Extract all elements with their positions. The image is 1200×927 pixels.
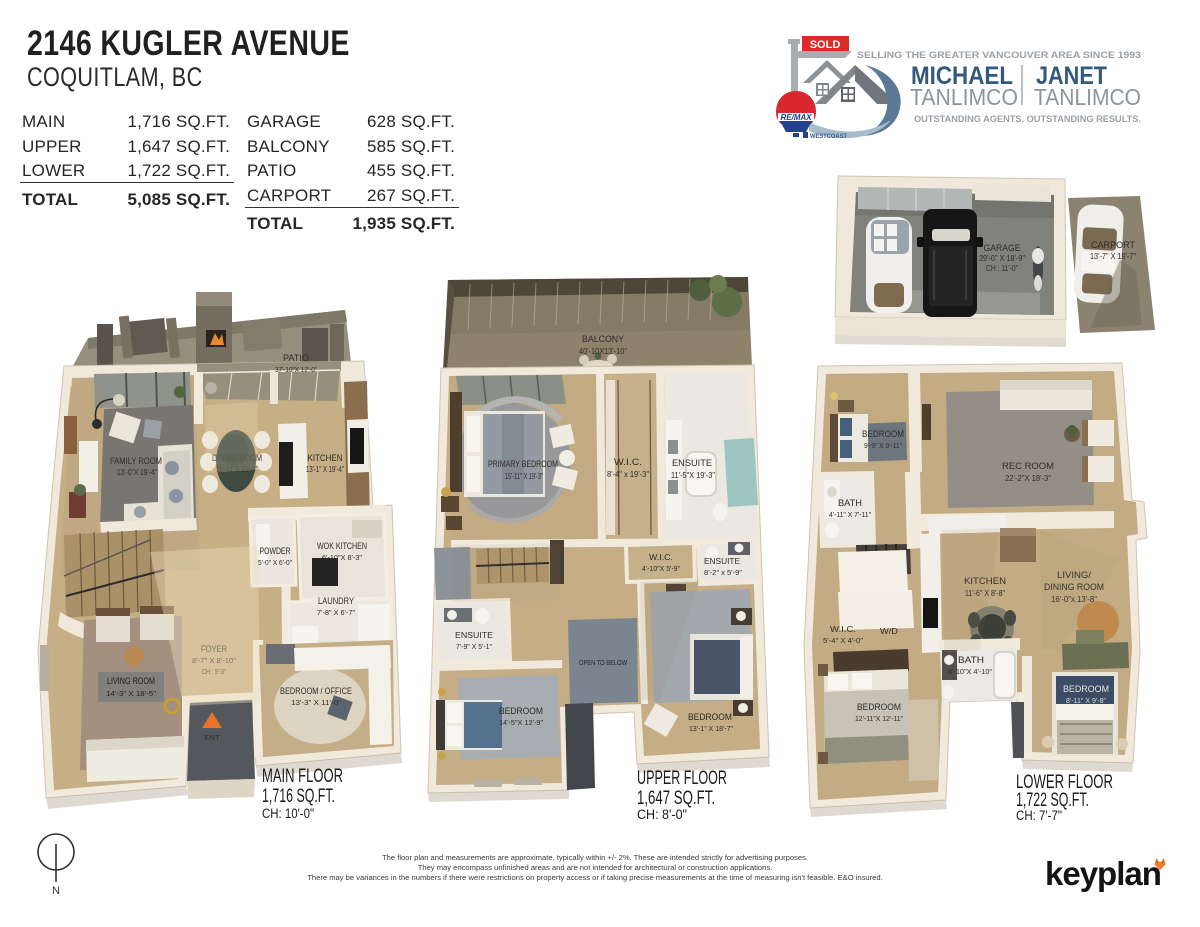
svg-text:12'-11"X 12'-11": 12'-11"X 12'-11" (855, 714, 903, 723)
svg-text:14'-5"X 12'-9": 14'-5"X 12'-9" (499, 718, 543, 727)
svg-text:BALCONY: BALCONY (582, 334, 625, 345)
svg-text:BATH: BATH (958, 655, 984, 665)
svg-text:29'-0" X 18'-9": 29'-0" X 18'-9" (979, 254, 1025, 263)
svg-text:FAMILY ROOM: FAMILY ROOM (110, 456, 162, 467)
svg-text:15'-11" X 19'-3": 15'-11" X 19'-3" (505, 472, 543, 481)
svg-text:LAUNDRY: LAUNDRY (318, 596, 354, 606)
svg-text:PATIO: PATIO (283, 353, 309, 363)
svg-text:ENSUITE: ENSUITE (455, 630, 493, 640)
svg-text:8'-2" x 5'-9": 8'-2" x 5'-9" (704, 568, 742, 577)
svg-text:POWDER: POWDER (260, 546, 291, 556)
svg-text:CARPORT: CARPORT (1091, 240, 1135, 251)
svg-text:13'-1" X 19'-4": 13'-1" X 19'-4" (306, 465, 344, 474)
svg-text:PRIMARY BEDROOM: PRIMARY BEDROOM (488, 459, 558, 470)
svg-text:BEDROOM: BEDROOM (862, 429, 904, 439)
svg-text:BEDROOM: BEDROOM (499, 706, 543, 716)
svg-text:40'-10X13'-10": 40'-10X13'-10" (579, 347, 627, 356)
svg-text:1,647 SQ.FT.: 1,647 SQ.FT. (637, 788, 715, 809)
svg-text:CH : 11'-0": CH : 11'-0" (986, 264, 1018, 273)
svg-text:BEDROOM / OFFICE: BEDROOM / OFFICE (280, 686, 352, 696)
svg-text:W.I.C.: W.I.C. (649, 553, 673, 562)
svg-text:ENSUITE: ENSUITE (672, 458, 712, 469)
svg-text:13'-3" X 11'-0": 13'-3" X 11'-0" (291, 698, 341, 707)
svg-text:13'-1" X 18'-7": 13'-1" X 18'-7" (689, 724, 733, 733)
svg-text:9'-9" X 9'-11": 9'-9" X 9'-11" (864, 441, 902, 450)
svg-text:5'-0" X 6'-0": 5'-0" X 6'-0" (258, 558, 292, 567)
svg-text:1,716 SQ.FT.: 1,716 SQ.FT. (262, 786, 335, 807)
svg-text:OPEN TO BELOW: OPEN TO BELOW (579, 658, 628, 667)
svg-text:13'-7" X 19'-7": 13'-7" X 19'-7" (1090, 252, 1136, 261)
svg-text:5'-4" X 4'-0": 5'-4" X 4'-0" (823, 636, 863, 645)
svg-text:7'-9" X 5'-1": 7'-9" X 5'-1" (456, 642, 492, 651)
svg-text:BEDROOM: BEDROOM (688, 712, 732, 722)
svg-text:14'-3" X 18'-5": 14'-3" X 18'-5" (106, 689, 156, 698)
svg-text:MAIN FLOOR: MAIN FLOOR (262, 766, 343, 787)
svg-text:CH: 10'-0": CH: 10'-0" (262, 806, 314, 821)
svg-text:ENSUITE: ENSUITE (704, 557, 741, 566)
svg-text:GARAGE: GARAGE (984, 243, 1021, 254)
svg-text:CH: 7'-7": CH: 7'-7" (1016, 808, 1062, 823)
svg-text:CH: 8'-0": CH: 8'-0" (637, 807, 687, 822)
svg-text:8'-11" X 9'-8": 8'-11" X 9'-8" (1066, 696, 1106, 705)
svg-text:6'-10"X 8'-3": 6'-10"X 8'-3" (322, 553, 362, 562)
svg-text:N: N (52, 885, 60, 897)
svg-text:7'-8" X 6'-7": 7'-8" X 6'-7" (317, 608, 355, 617)
svg-text:W/D: W/D (880, 627, 898, 636)
svg-text:BATH: BATH (838, 498, 862, 508)
svg-text:22'-2"X 18'-3": 22'-2"X 18'-3" (1005, 474, 1051, 483)
svg-text:8'-10"X 4'-10": 8'-10"X 4'-10" (948, 667, 992, 676)
svg-text:UPPER FLOOR: UPPER FLOOR (637, 768, 727, 789)
svg-text:KITCHEN: KITCHEN (308, 453, 343, 464)
svg-text:4'-11" X 7'-11": 4'-11" X 7'-11" (829, 510, 871, 519)
svg-text:ENT: ENT (204, 733, 220, 742)
svg-text:37'-10"X 12'-0": 37'-10"X 12'-0" (275, 365, 317, 374)
svg-text:8'-4" x 19'-3": 8'-4" x 19'-3" (607, 470, 649, 479)
svg-text:BEDROOM: BEDROOM (1063, 684, 1109, 694)
svg-text:13'-0"X 19'-4": 13'-0"X 19'-4" (117, 468, 157, 477)
svg-text:BEDROOM: BEDROOM (857, 702, 901, 712)
svg-text:WOK KITCHEN: WOK KITCHEN (317, 541, 367, 551)
svg-text:REC ROOM: REC ROOM (1002, 461, 1054, 472)
svg-text:W.I.C.: W.I.C. (614, 457, 642, 468)
svg-text:W.I.C.: W.I.C. (830, 625, 856, 634)
svg-text:LIVING ROOM: LIVING ROOM (107, 676, 155, 686)
svg-text:11'-5"X 19'-3": 11'-5"X 19'-3" (671, 471, 715, 480)
svg-text:4'-10"X 5'-9": 4'-10"X 5'-9" (642, 564, 680, 573)
